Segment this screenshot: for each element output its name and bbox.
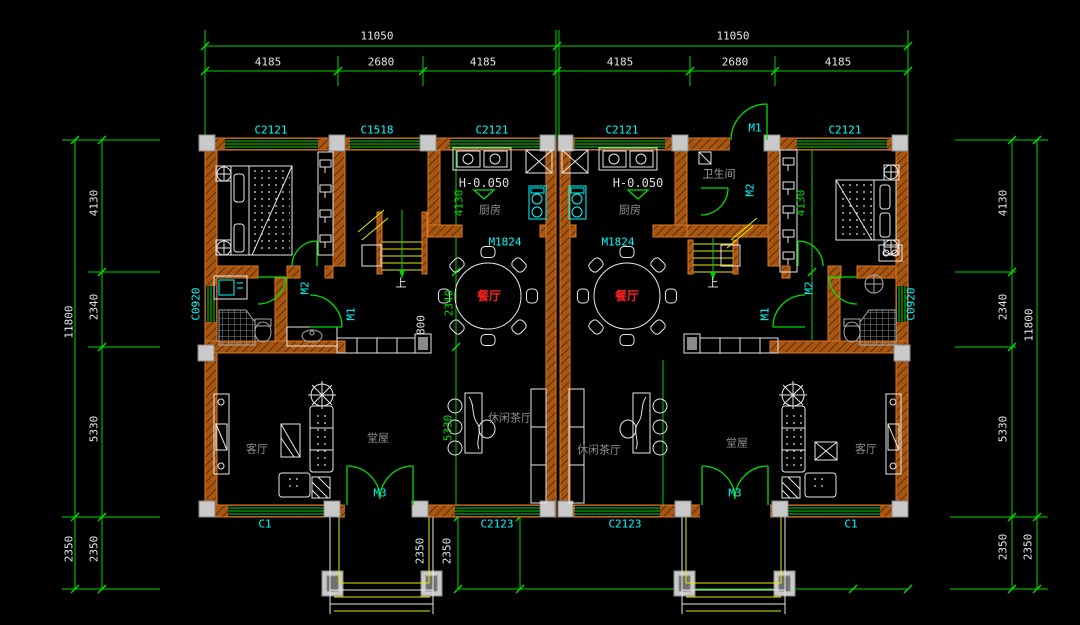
stairs-left — [358, 210, 427, 278]
hall-cabinet-right — [684, 334, 778, 353]
door-bedroom-left — [292, 241, 317, 266]
window-c1-left — [228, 506, 330, 516]
door-m2-bath-top-right — [701, 188, 728, 215]
furniture — [214, 148, 902, 503]
floor-plan-svg — [0, 0, 1080, 625]
door-m3-right — [702, 466, 768, 505]
window-c2123-right — [575, 506, 660, 516]
door-m1-mid-right — [773, 295, 805, 327]
dining-table-right — [578, 247, 677, 346]
door-bedroom-right — [798, 241, 823, 266]
bathroom-right-fixtures — [844, 245, 902, 345]
wardrobe-right — [780, 150, 797, 272]
porches — [330, 517, 785, 614]
window-c0920-right — [897, 286, 907, 322]
living-left-furniture — [214, 381, 336, 498]
kitchen-left-fixtures — [362, 148, 552, 266]
floor-plan-canvas: 1105041852680418511050418526804185118004… — [0, 0, 1080, 625]
party-wall-cabinets — [531, 389, 584, 503]
door-m1-mid-left — [310, 295, 342, 327]
living-right-furniture — [779, 381, 901, 498]
door-gaps — [345, 137, 770, 518]
door-m3-left — [347, 466, 413, 505]
doors — [258, 104, 857, 505]
dining-table-left — [439, 247, 538, 346]
hall-cabinet-left — [337, 334, 431, 353]
tea-left-furniture — [448, 393, 495, 455]
window-c1-right — [778, 506, 880, 516]
window-c2121-bedroom-left — [225, 139, 318, 149]
window-c1518 — [350, 139, 422, 149]
bed-right — [836, 165, 899, 255]
porch-right — [682, 517, 785, 614]
window-c2123-left — [455, 506, 540, 516]
tea-right-furniture — [620, 393, 667, 455]
bed-left — [216, 166, 292, 255]
wardrobe-left — [318, 152, 333, 255]
porch-left — [330, 517, 433, 614]
door-m1-top-right — [731, 104, 767, 140]
window-c2121-bedroom-right — [797, 139, 887, 149]
